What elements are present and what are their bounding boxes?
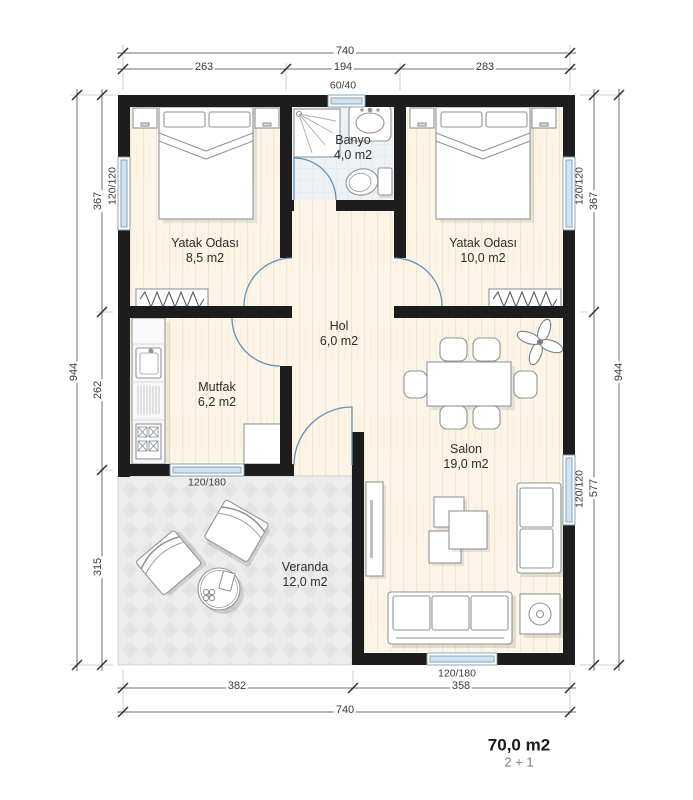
window-label-bedroom-right: 120/120 xyxy=(575,166,586,206)
dim-right-seg1: 367 xyxy=(588,190,600,212)
dim-bottom-total: 740 xyxy=(334,704,356,716)
room-area: 6,2 m2 xyxy=(198,395,236,410)
nightstand-right-a xyxy=(410,108,434,128)
room-label-bathroom: Banyo 4,0 m2 xyxy=(334,133,372,163)
bed-symbol-left xyxy=(159,107,257,223)
room-area: 8,5 m2 xyxy=(171,251,239,266)
room-label-salon: Salon 19,0 m2 xyxy=(443,442,488,472)
room-area: 4,0 m2 xyxy=(334,148,372,163)
window-label-salon-right: 120/120 xyxy=(575,469,586,509)
room-label-bedroom-right: Yatak Odası 10,0 m2 xyxy=(449,236,517,266)
room-label-hall: Hol 6,0 m2 xyxy=(320,319,358,349)
nightstand-right-b xyxy=(532,108,556,128)
dim-right-total: 944 xyxy=(613,361,625,383)
room-name: Salon xyxy=(443,442,488,457)
kitchen-counter-symbol xyxy=(132,318,170,464)
dim-top-total: 740 xyxy=(334,45,356,57)
total-area: 70,0 m2 xyxy=(488,736,550,755)
window-label-kitchen-bottom: 120/180 xyxy=(187,478,227,489)
nightstand-left-a xyxy=(133,108,157,128)
dim-left-seg1: 367 xyxy=(92,190,104,212)
room-area: 10,0 m2 xyxy=(449,251,517,266)
room-area: 19,0 m2 xyxy=(443,457,488,472)
window-label-salon-bottom: 120/180 xyxy=(437,669,477,680)
room-label-veranda: Veranda 12,0 m2 xyxy=(282,560,329,590)
room-name: Mutfak xyxy=(198,380,236,395)
room-name: Veranda xyxy=(282,560,329,575)
room-label-bedroom-left: Yatak Odası 8,5 m2 xyxy=(171,236,239,266)
tv-unit-symbol xyxy=(366,482,386,579)
sofa-three-seat-symbol xyxy=(388,592,516,648)
floor-plan-canvas: 740 263 194 283 60/40 944 367 262 315 12… xyxy=(0,0,693,800)
bed-symbol-right xyxy=(436,107,534,223)
window-kitchen-bottom xyxy=(170,464,244,476)
dim-bottom-seg2: 358 xyxy=(450,680,472,692)
nightstand-left-b xyxy=(255,108,279,128)
room-count: 2 + 1 xyxy=(488,755,550,771)
dim-top-seg1: 263 xyxy=(193,61,215,73)
dim-left-seg2: 262 xyxy=(92,379,104,401)
plan-summary: 70,0 m2 2 + 1 xyxy=(488,736,550,771)
dim-left-seg3: 315 xyxy=(92,556,104,578)
dim-right-seg2: 577 xyxy=(588,477,600,499)
dim-top-seg3: 283 xyxy=(474,61,496,73)
sofa-two-seat-symbol xyxy=(517,483,565,577)
room-name: Yatak Odası xyxy=(449,236,517,251)
room-label-kitchen: Mutfak 6,2 m2 xyxy=(198,380,236,410)
window-bath-top xyxy=(328,95,365,107)
side-table-symbol xyxy=(520,594,564,638)
room-name: Yatak Odası xyxy=(171,236,239,251)
window-salon-bottom xyxy=(427,653,497,665)
window-label-bedroom-left: 120/120 xyxy=(108,166,119,206)
room-area: 12,0 m2 xyxy=(282,575,329,590)
room-area: 6,0 m2 xyxy=(320,334,358,349)
room-name: Hol xyxy=(320,319,358,334)
dim-left-total: 944 xyxy=(68,361,80,383)
dim-bottom-seg1: 382 xyxy=(226,680,248,692)
window-label-bath-top: 60/40 xyxy=(329,81,357,92)
room-name: Banyo xyxy=(334,133,372,148)
dim-top-seg2: 194 xyxy=(332,61,354,73)
window-bedroom-left xyxy=(118,157,130,230)
